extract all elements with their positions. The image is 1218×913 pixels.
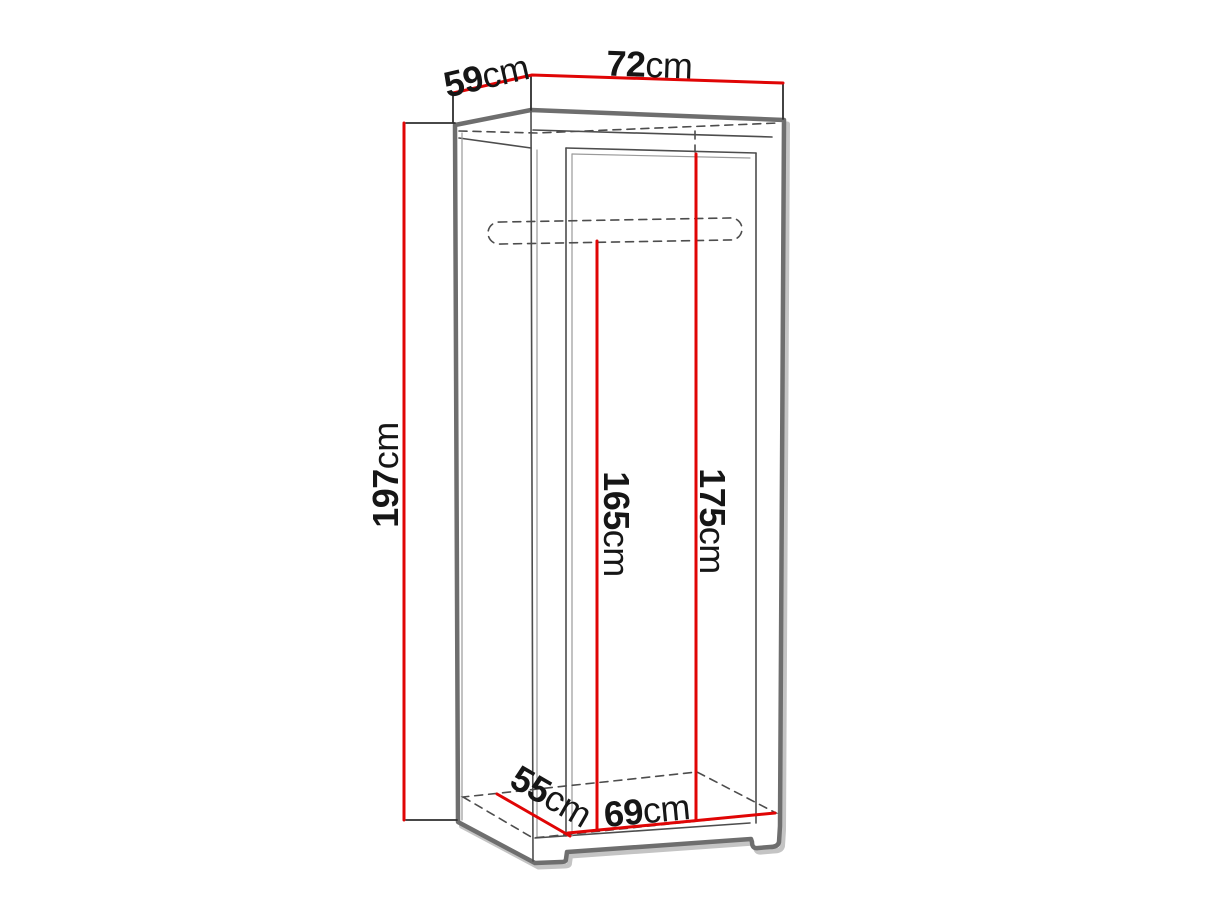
dim-label-197cm: 197cm: [365, 422, 406, 528]
dim-label-72cm: 72cm: [606, 43, 693, 87]
dim-label-165cm: 165cm: [596, 471, 637, 577]
diagram-canvas: 59cm 72cm 197cm 165cm 175cm 55cm 69cm: [0, 0, 1218, 913]
dim-label-175cm: 175cm: [692, 468, 733, 574]
dim-label-59cm: 59cm: [440, 46, 533, 105]
wardrobe-dimension-diagram: 59cm 72cm 197cm 165cm 175cm 55cm 69cm: [0, 0, 1218, 913]
dim-label-69cm: 69cm: [602, 786, 692, 835]
